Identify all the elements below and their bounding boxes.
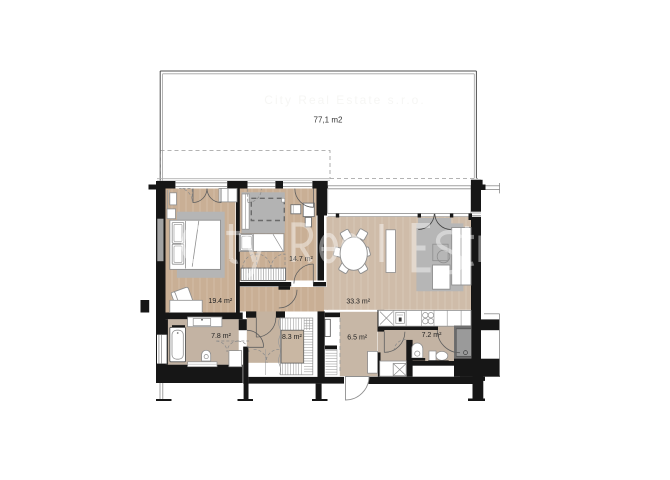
- svg-text:19.4 m²: 19.4 m²: [208, 298, 232, 305]
- svg-text:7.8 m²: 7.8 m²: [211, 333, 232, 340]
- svg-text:City Real Estate s.r.o.: City Real Estate s.r.o.: [264, 93, 425, 107]
- svg-text:6.5 m²: 6.5 m²: [347, 335, 368, 342]
- svg-text:7.2 m²: 7.2 m²: [422, 332, 443, 339]
- svg-text:77,1 m2: 77,1 m2: [314, 116, 343, 125]
- svg-text:33.3 m²: 33.3 m²: [346, 299, 370, 306]
- svg-text:8.3 m²: 8.3 m²: [282, 334, 303, 341]
